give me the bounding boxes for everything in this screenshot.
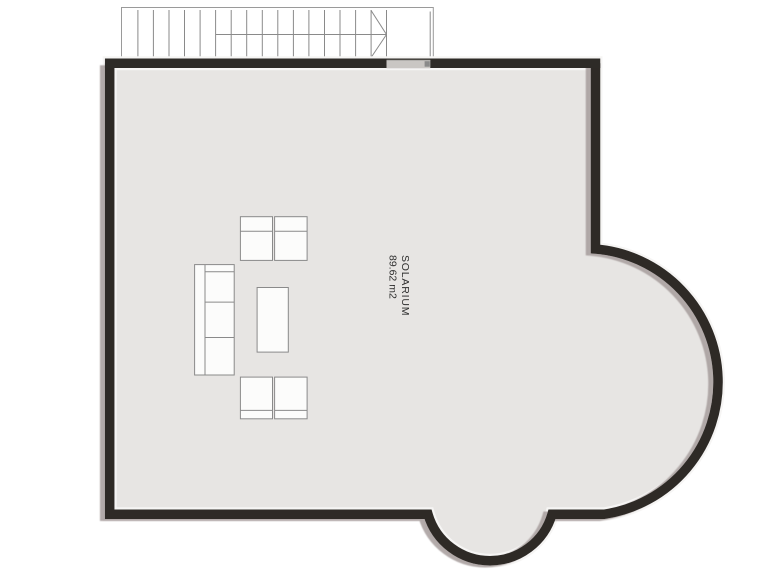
svg-text:89.62 m2: 89.62 m2 [386,255,398,299]
svg-text:SOLARIUM: SOLARIUM [399,255,411,316]
